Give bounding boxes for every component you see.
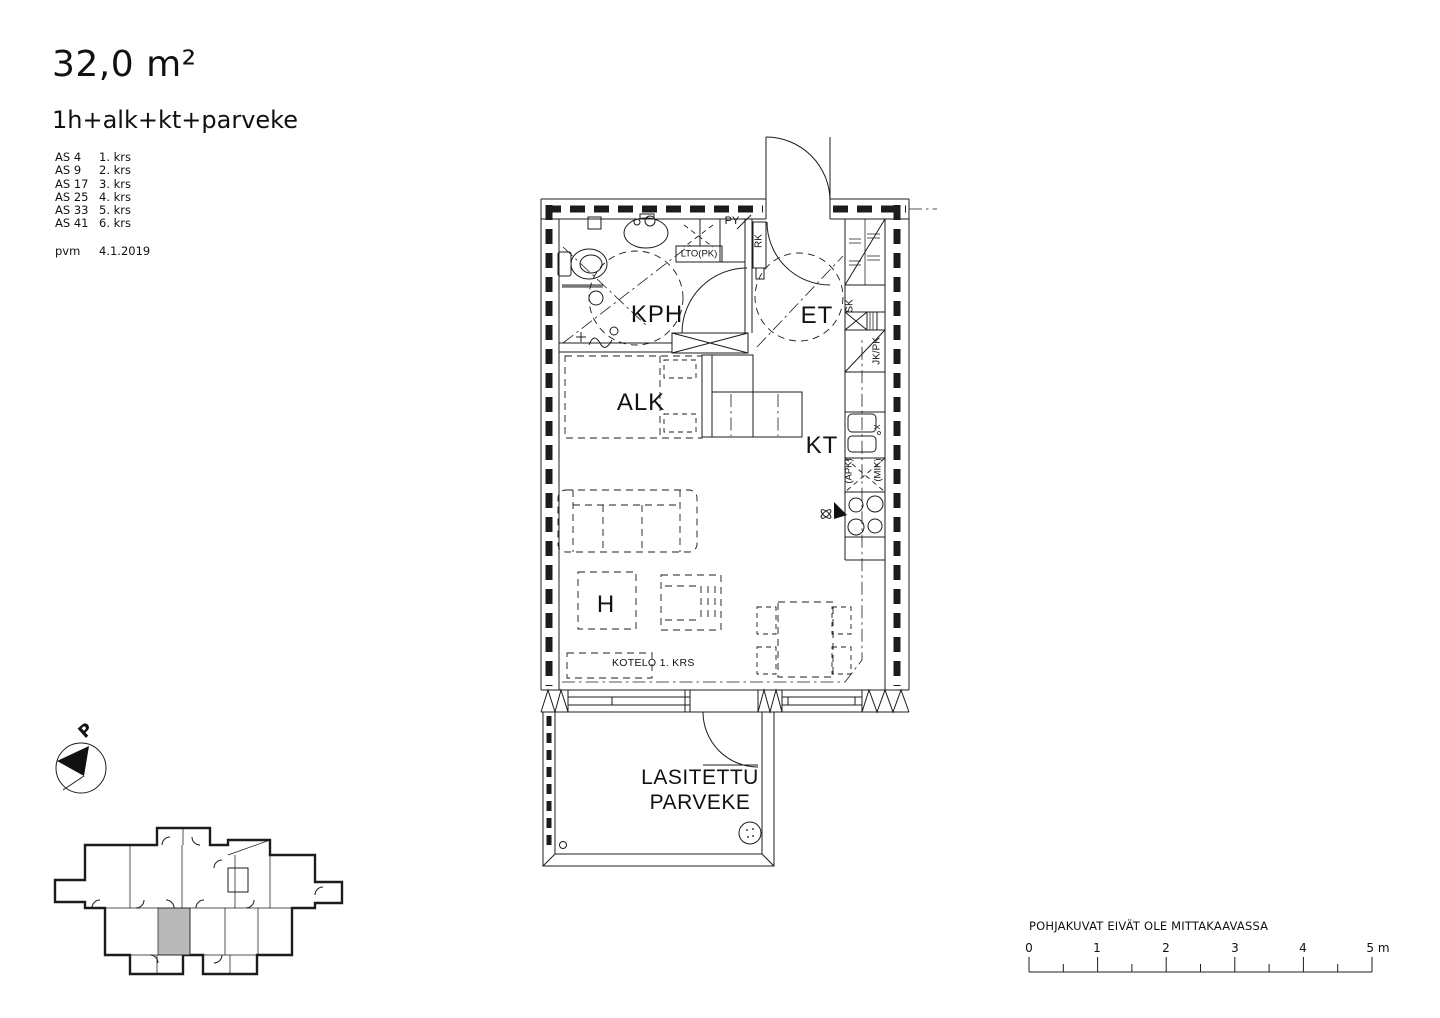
apartment-list: AS 4 1. krs AS 9 2. krs AS 17 3. krs AS … bbox=[55, 151, 131, 231]
paper-holder bbox=[589, 291, 603, 305]
chair bbox=[757, 647, 776, 674]
interior-walls bbox=[559, 215, 766, 353]
stove-burner bbox=[868, 519, 882, 533]
scale-tick-label: 3 bbox=[1231, 941, 1239, 955]
pillow bbox=[664, 414, 696, 432]
living-furniture bbox=[558, 490, 851, 678]
balcony-door-arc bbox=[703, 712, 758, 767]
apartment-list-row: AS 25 4. krs bbox=[55, 191, 131, 204]
stairwell bbox=[228, 868, 248, 892]
annotation-duct: KOTELO 1. KRS bbox=[612, 657, 695, 669]
wardrobe bbox=[702, 355, 753, 437]
alcove-furniture bbox=[565, 355, 802, 438]
floor-plan-drawing bbox=[0, 0, 1440, 1018]
armchair bbox=[661, 575, 721, 630]
annotation-cleaning-closet: SK bbox=[845, 299, 856, 312]
apartment-list-row: AS 4 1. krs bbox=[55, 151, 131, 164]
room-label-bathroom: KPH bbox=[631, 301, 683, 329]
room-label-balcony: LASITETTU PARVEKE bbox=[641, 766, 759, 816]
closet bbox=[753, 392, 802, 437]
window-band bbox=[541, 690, 909, 712]
scale-disclaimer: POHJAKUVAT EIVÄT OLE MITTAKAAVASSA bbox=[1029, 919, 1268, 933]
scale-tick-label: 1 bbox=[1093, 941, 1101, 955]
sofa bbox=[558, 490, 697, 552]
floor-drain bbox=[739, 822, 761, 844]
chair bbox=[832, 607, 851, 634]
cooker-hood-symbol bbox=[820, 502, 847, 520]
apartment-layout: 1h+alk+kt+parveke bbox=[52, 106, 298, 134]
annotation-electrical-cabinet: RK bbox=[754, 234, 765, 248]
annotation-heat-recovery: LTO(PK) bbox=[681, 249, 718, 260]
floor-plan-page: 32,0 m² 1h+alk+kt+parveke AS 4 1. krs AS… bbox=[0, 0, 1440, 1018]
bathroom-door-arc bbox=[682, 268, 747, 333]
annotation-fridge-freezer: JK/PK bbox=[872, 337, 883, 365]
apartment-list-row: AS 41 6. krs bbox=[55, 217, 131, 230]
apartment-list-row: AS 17 3. krs bbox=[55, 178, 131, 191]
annotation-microwave: (MIK) bbox=[873, 458, 884, 481]
dining-table bbox=[778, 602, 833, 677]
stove-burner bbox=[867, 496, 883, 512]
room-label-entry: ET bbox=[801, 302, 834, 330]
annotation-laundry: PY bbox=[725, 215, 740, 227]
room-label-room: H bbox=[597, 591, 615, 619]
scale-tick-label: 5 m bbox=[1366, 941, 1389, 955]
entrance-door bbox=[766, 137, 830, 285]
page-title-area: 32,0 m² bbox=[52, 44, 197, 85]
annotation-dishwasher: (APK) bbox=[844, 458, 855, 483]
chair bbox=[832, 647, 851, 674]
pillow bbox=[664, 360, 696, 378]
stove-burner bbox=[849, 498, 863, 512]
key-plan bbox=[55, 828, 342, 974]
scale-bar bbox=[1029, 957, 1372, 972]
room-label-alcove: ALK bbox=[617, 389, 665, 417]
scale-tick-label: 0 bbox=[1025, 941, 1033, 955]
scale-tick-label: 4 bbox=[1299, 941, 1307, 955]
north-arrow bbox=[56, 743, 106, 793]
toilet-tank bbox=[558, 252, 571, 276]
washbasin bbox=[624, 218, 668, 248]
date-row: pvm 4.1.2019 bbox=[55, 244, 150, 258]
room-label-kitchenette: KT bbox=[806, 432, 839, 460]
apartment-list-row: AS 33 5. krs bbox=[55, 204, 131, 217]
apartment-list-row: AS 9 2. krs bbox=[55, 164, 131, 177]
scale-tick-label: 2 bbox=[1162, 941, 1170, 955]
highlighted-apartment bbox=[158, 908, 190, 955]
chair bbox=[757, 607, 776, 634]
